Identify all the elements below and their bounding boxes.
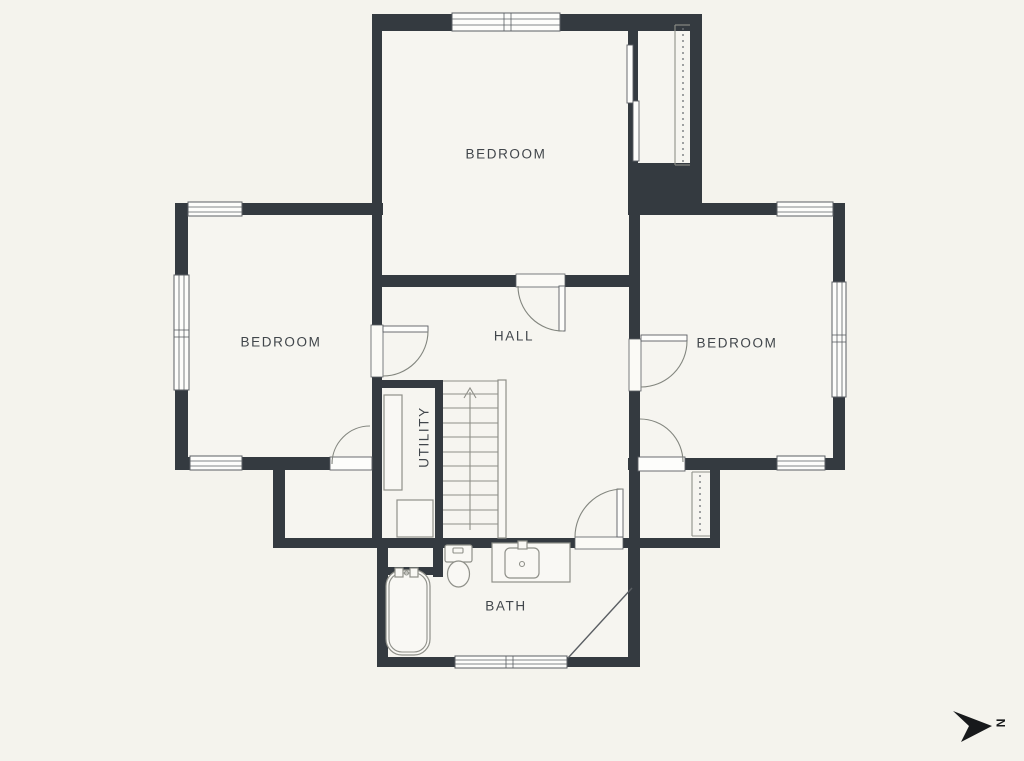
window-bedroom-right-bottom bbox=[777, 456, 825, 470]
room-label-bedroom-left: BEDROOM bbox=[241, 335, 322, 350]
chimney-block bbox=[628, 163, 702, 203]
washing-machine bbox=[397, 500, 433, 537]
window-bath bbox=[455, 656, 567, 668]
tap bbox=[410, 568, 418, 577]
room-label-bath: BATH bbox=[485, 599, 526, 614]
compass-north-label: N bbox=[993, 719, 1007, 728]
window-bedroom-top bbox=[452, 13, 560, 31]
stair-handrail bbox=[498, 380, 506, 538]
room-label-bedroom-top: BEDROOM bbox=[466, 147, 547, 162]
compass: N bbox=[938, 698, 1018, 754]
room-closet-top-right bbox=[637, 25, 690, 165]
tap bbox=[395, 568, 403, 577]
room-label-utility: UTILITY bbox=[417, 406, 432, 467]
sink bbox=[492, 541, 570, 582]
window-bedroom-right-east bbox=[832, 282, 846, 397]
floor-plan: BEDROOM BEDROOM BEDROOM HALL UTILITY BAT… bbox=[0, 0, 1024, 761]
window-bedroom-left-west bbox=[174, 275, 189, 390]
bathtub bbox=[386, 568, 430, 655]
window-bedroom-left-top bbox=[188, 202, 242, 216]
window-bedroom-right-top bbox=[777, 202, 833, 216]
room-label-bedroom-right: BEDROOM bbox=[697, 336, 778, 351]
floor-plan-drawing bbox=[0, 0, 1024, 761]
room-closet-lower-right bbox=[640, 470, 710, 538]
utility-counter bbox=[384, 395, 402, 490]
window-bedroom-left-bottom bbox=[190, 456, 242, 470]
faucet bbox=[518, 541, 527, 549]
room-label-hall: HALL bbox=[494, 329, 534, 344]
room-storage-lower-left bbox=[285, 470, 370, 538]
